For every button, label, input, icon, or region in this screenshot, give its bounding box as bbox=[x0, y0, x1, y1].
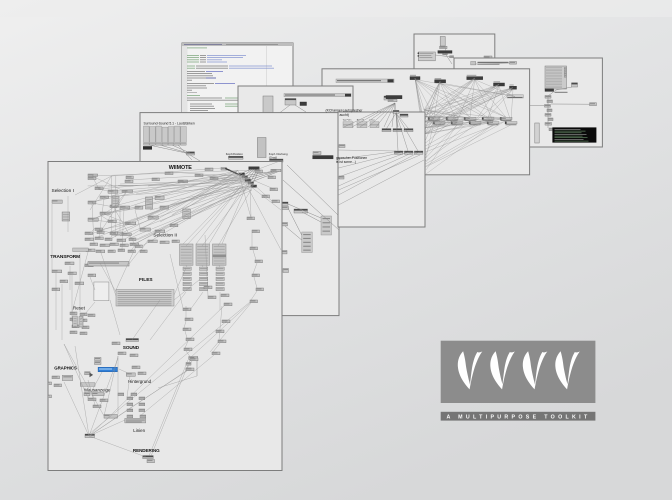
svg-text:TRANSFORM: TRANSFORM bbox=[50, 254, 80, 260]
svg-text:FILES: FILES bbox=[139, 277, 153, 283]
svg-text:Selection I: Selection I bbox=[52, 188, 74, 194]
svg-text:SOUND: SOUND bbox=[123, 345, 140, 350]
svg-text:Hintergrund: Hintergrund bbox=[128, 379, 151, 384]
svg-text:Linien: Linien bbox=[133, 428, 145, 433]
svg-text:ts ist sorne...): ts ist sorne...) bbox=[336, 160, 356, 164]
svg-text:(Grad): (Grad) bbox=[269, 155, 277, 159]
svg-text:aucht): aucht) bbox=[340, 113, 349, 117]
svg-text:Surround-Sound 5.1 - Lautstärk: Surround-Sound 5.1 - Lautstärken bbox=[144, 122, 195, 126]
svg-text:RENDERING: RENDERING bbox=[133, 448, 160, 453]
svg-text:GRAPHICS: GRAPHICS bbox=[54, 365, 77, 370]
svg-text:Top Finln: Top Finln bbox=[343, 120, 353, 122]
svg-text:Mausanzeige: Mausanzeige bbox=[84, 388, 111, 393]
svg-text:Selection II: Selection II bbox=[153, 233, 177, 239]
svg-text:(KChannel-Lautsprecher: (KChannel-Lautsprecher bbox=[326, 108, 364, 112]
svg-text:Reset: Reset bbox=[73, 305, 86, 310]
svg-text:A MULTIPURPOSE TOOLKIT: A MULTIPURPOSE TOOLKIT bbox=[446, 415, 590, 421]
svg-text:Kopf-Position: Kopf-Position bbox=[226, 152, 244, 156]
svg-text:WIIMOTE: WIIMOTE bbox=[169, 165, 192, 171]
